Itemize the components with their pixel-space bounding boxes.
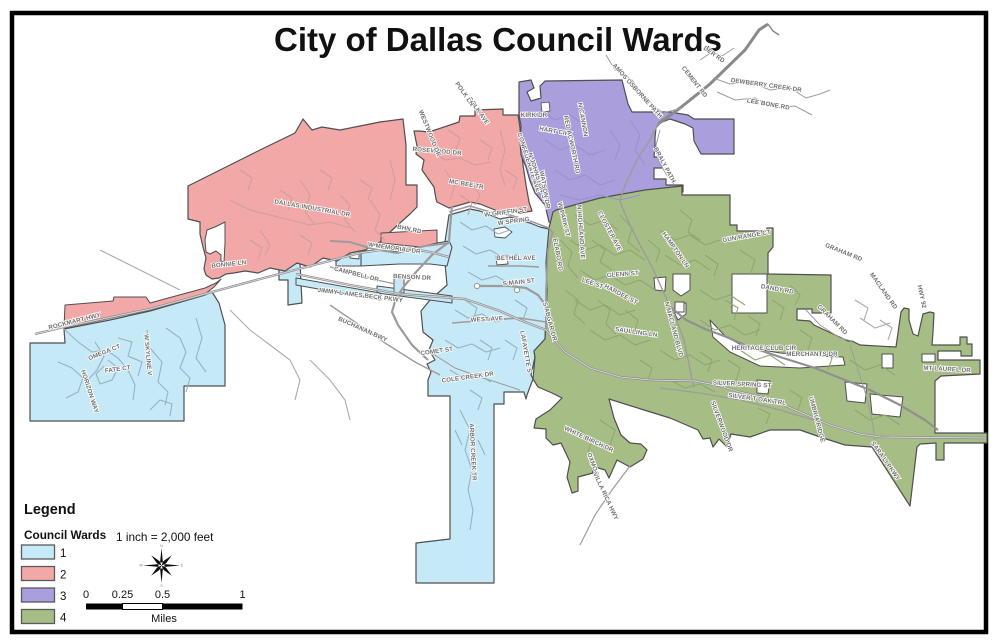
svg-text:Miles: Miles xyxy=(151,613,177,625)
svg-text:KIRK DR: KIRK DR xyxy=(521,112,548,119)
svg-text:0.25: 0.25 xyxy=(112,589,133,601)
svg-text:4: 4 xyxy=(60,613,67,625)
svg-text:0.5: 0.5 xyxy=(155,589,170,601)
svg-text:1: 1 xyxy=(239,589,245,601)
svg-text:Council Wards: Council Wards xyxy=(24,528,107,542)
svg-text:0: 0 xyxy=(83,589,89,601)
svg-text:BETHEL AVE: BETHEL AVE xyxy=(496,255,535,262)
svg-text:1 inch = 2,000 feet: 1 inch = 2,000 feet xyxy=(116,530,214,544)
svg-text:Legend: Legend xyxy=(24,502,76,518)
svg-text:1: 1 xyxy=(60,548,66,560)
svg-text:MERCHANTS DR: MERCHANTS DR xyxy=(786,351,838,358)
svg-text:2: 2 xyxy=(60,570,66,582)
svg-text:3: 3 xyxy=(60,591,66,603)
svg-text:City of Dallas Council Wards: City of Dallas Council Wards xyxy=(274,21,722,58)
